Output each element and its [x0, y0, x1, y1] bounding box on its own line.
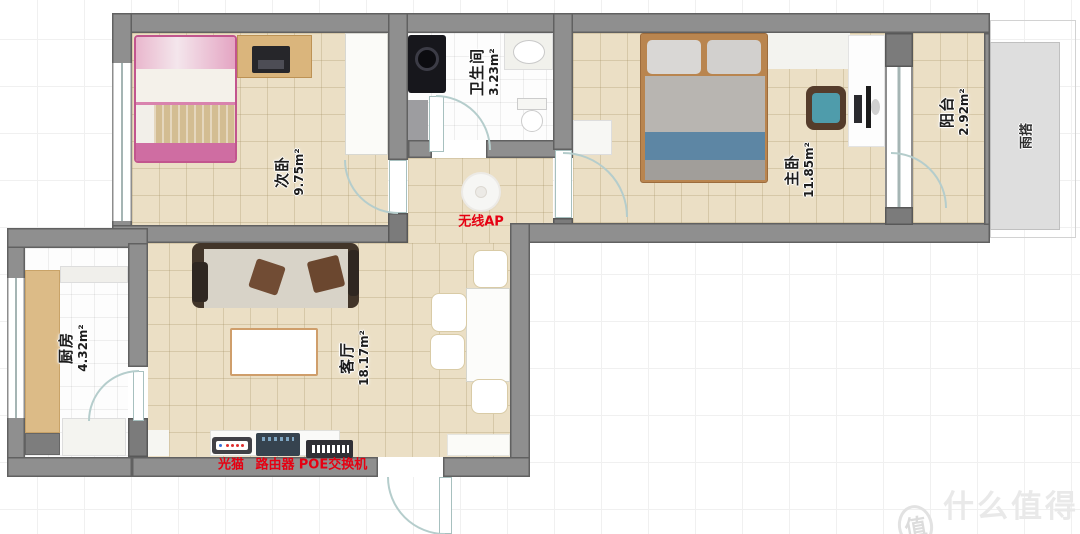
rug-master	[758, 33, 850, 69]
annotation-poe-switch: POE交换机	[299, 454, 367, 473]
room-area: 9.75m²	[292, 148, 307, 195]
smzdm-watermark: 值 什么值得买	[898, 481, 1080, 534]
dining-chair-1	[473, 250, 508, 288]
router-lights	[262, 437, 294, 441]
wall-master-bottom	[510, 223, 990, 243]
kitchen-fridge	[62, 418, 126, 456]
bed-master-pillow-right	[707, 40, 761, 74]
kitchen-stove	[25, 433, 60, 455]
bed-secondary-rug	[154, 105, 237, 145]
label-secondary-bedroom: 次卧 9.75m²	[273, 148, 307, 195]
dining-chair-4	[471, 379, 508, 414]
wall-bath-right	[553, 13, 573, 150]
bed-master-footer	[645, 160, 765, 180]
bed-master-pillow-left	[647, 40, 701, 74]
door-leaf-master	[555, 150, 572, 218]
bed-secondary-duvet	[136, 69, 237, 105]
laptop	[252, 46, 290, 73]
wardrobe-secondary	[345, 33, 388, 155]
pillar-balcony-top	[885, 33, 913, 67]
bed-secondary-footer	[136, 143, 237, 163]
washer-drum	[415, 47, 439, 71]
sofa-armrest-right	[348, 250, 359, 296]
room-name: 阳台	[938, 88, 957, 135]
wall-balcony-right-thin	[984, 33, 990, 225]
room-name: 卫生间	[468, 48, 487, 96]
switch-ports	[312, 445, 349, 453]
shower-mat	[408, 100, 428, 140]
bed-secondary-pillows	[136, 37, 237, 69]
room-name: 厨房	[57, 324, 76, 371]
wall-top	[112, 13, 990, 33]
wall-living-right	[510, 223, 530, 477]
bathroom-sink-counter	[504, 33, 553, 70]
shoe-cabinet	[447, 434, 510, 456]
pillar-balcony-bottom	[885, 207, 913, 225]
toilet-bowl	[521, 110, 543, 132]
modem-lights	[226, 444, 229, 447]
window-kitchen-left	[7, 278, 25, 418]
floor-plan-canvas: 值 什么值得买	[0, 0, 1080, 534]
chair-master	[806, 86, 846, 130]
door-leaf-bedroom2	[389, 160, 407, 213]
room-area: 18.17m²	[357, 330, 372, 386]
bed-secondary	[134, 35, 237, 163]
wireless-ap-center	[475, 186, 487, 198]
threshold-entrance	[378, 457, 443, 477]
room-area: 11.85m²	[802, 142, 817, 198]
laptop-keyboard	[258, 60, 284, 69]
label-living-room: 客厅 18.17m²	[338, 330, 372, 386]
sink-basin	[513, 40, 545, 64]
chair-master-cushion	[812, 93, 840, 123]
pillar-kitchen-door	[128, 418, 148, 457]
kitchen-counter	[25, 270, 60, 433]
wall-kitchen-right-upper	[128, 243, 148, 367]
label-bathroom: 卫生间 3.23m²	[468, 48, 502, 96]
room-area: 4.32m²	[76, 324, 91, 371]
label-master-bedroom: 主卧 11.85m²	[783, 142, 817, 198]
washing-machine	[408, 35, 446, 93]
door-arc-entrance	[388, 477, 445, 534]
coffee-table	[230, 328, 318, 376]
sofa	[192, 243, 359, 308]
annotation-router: 路由器	[255, 454, 294, 473]
monitor-stand	[871, 99, 880, 115]
door-leaf-bathroom	[429, 96, 444, 152]
toilet	[517, 98, 547, 134]
label-balcony: 阳台 2.92m²	[938, 88, 972, 135]
wall-bottom-right-segment	[443, 457, 530, 477]
corner-cabinet	[145, 430, 169, 456]
wireless-ap-device	[463, 174, 499, 210]
label-canopy: 雨搭	[1016, 123, 1035, 149]
wall-kitchen-bottom	[7, 457, 132, 477]
pillar-bedroom2-door	[388, 213, 408, 243]
window-bedroom2-left	[112, 63, 132, 221]
door-leaf-entrance	[439, 477, 452, 534]
annotation-wireless-ap: 无线AP	[458, 211, 504, 230]
room-name: 主卧	[783, 142, 802, 198]
room-area: 3.23m²	[487, 48, 502, 96]
window-master-balcony	[885, 67, 913, 153]
bed-master	[640, 33, 768, 183]
annotation-modem: 光猫	[218, 454, 244, 473]
modem-device	[212, 437, 252, 454]
wall-bedroom2-right	[388, 13, 408, 160]
watermark-badge-icon: 值	[895, 502, 937, 534]
room-area: 2.92m²	[957, 88, 972, 135]
wall-kitchen-top	[7, 228, 148, 248]
bed-master-blue-blanket	[645, 132, 765, 160]
wall-bedroom2-bottom	[112, 225, 408, 243]
room-name: 次卧	[273, 148, 292, 195]
dining-table	[466, 288, 510, 382]
door-leaf-balcony	[885, 153, 913, 207]
room-name: 客厅	[338, 330, 357, 386]
dining-chair-3	[430, 334, 465, 370]
modem-face	[216, 441, 248, 450]
door-leaf-kitchen	[133, 371, 144, 421]
dining-chair-2	[431, 293, 467, 332]
toilet-tank	[517, 98, 547, 110]
keyboard-master	[854, 95, 862, 123]
wardrobe-master	[573, 120, 612, 155]
kitchen-top-shelf	[60, 266, 128, 283]
bed-master-duvet	[645, 76, 765, 132]
watermark-text: 什么值得买	[943, 481, 1080, 534]
sofa-armrest-left	[192, 262, 208, 302]
label-kitchen: 厨房 4.32m²	[57, 324, 91, 371]
